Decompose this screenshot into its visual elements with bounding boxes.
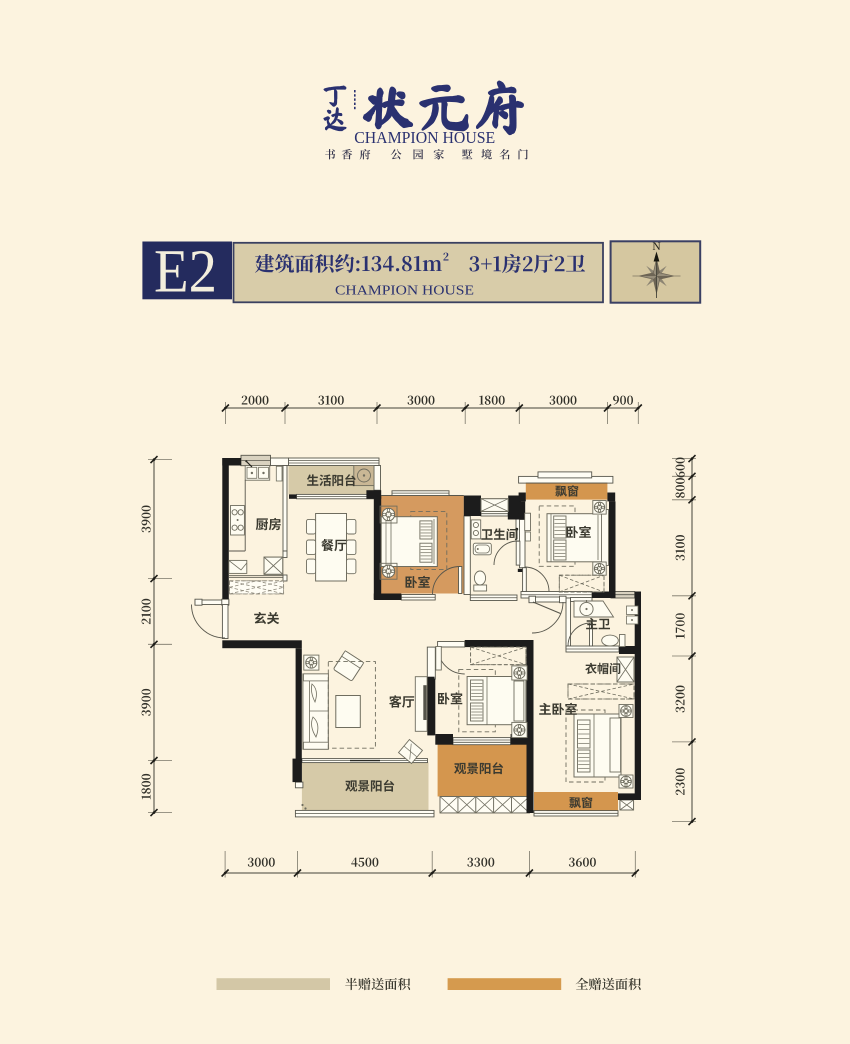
svg-text:CHAMPION HOUSE: CHAMPION HOUSE (354, 128, 495, 147)
svg-text:CHAMPION HOUSE: CHAMPION HOUSE (335, 283, 474, 298)
svg-text:N: N (652, 241, 661, 253)
svg-text:E2: E2 (154, 239, 217, 306)
